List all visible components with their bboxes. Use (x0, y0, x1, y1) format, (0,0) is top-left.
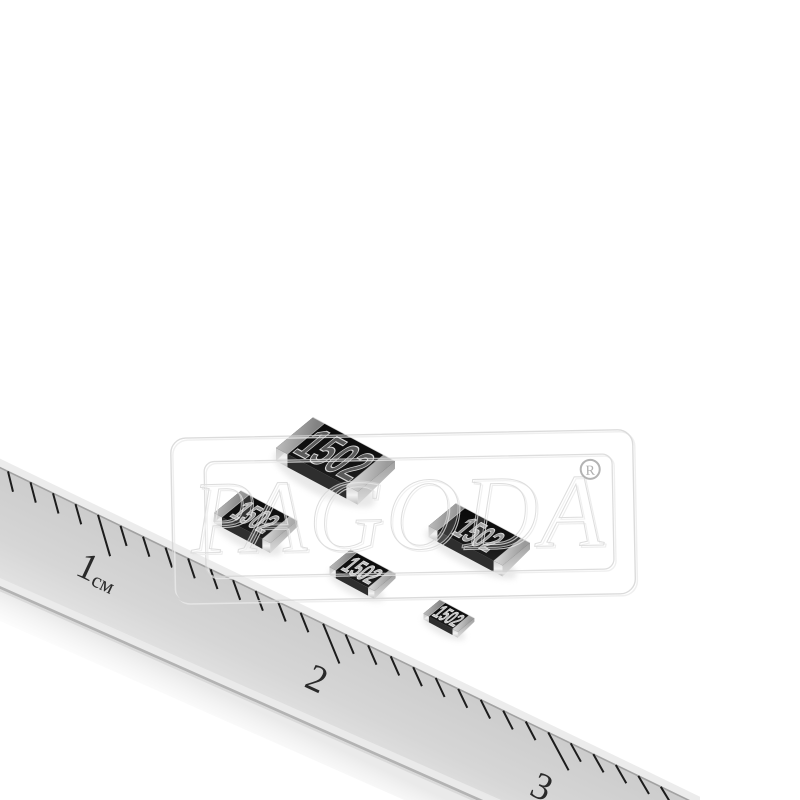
svg-text:PAGODA: PAGODA (189, 453, 607, 576)
svg-text:R: R (585, 464, 595, 479)
